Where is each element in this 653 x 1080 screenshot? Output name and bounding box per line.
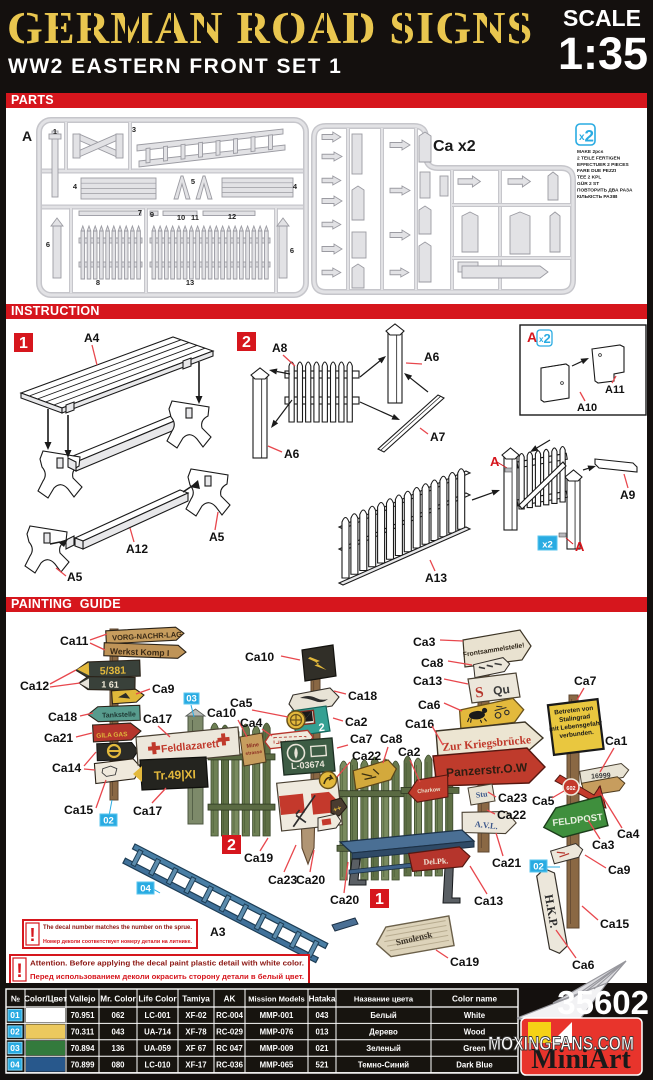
svg-text:Ca10: Ca10 [207,706,236,720]
svg-text:12: 12 [228,212,236,221]
svg-text:FARE DUE PEZZI: FARE DUE PEZZI [577,168,617,174]
svg-text:A3: A3 [210,925,226,939]
svg-text:GÜR 2 ST: GÜR 2 ST [577,180,599,187]
svg-text:3: 3 [132,125,136,134]
svg-text:Ca4: Ca4 [617,827,640,841]
svg-text:4: 4 [293,182,298,191]
svg-text:02: 02 [103,816,114,827]
svg-text:1 61: 1 61 [101,679,119,689]
svg-text:Ca7: Ca7 [350,732,373,746]
svg-text:A6: A6 [284,447,300,461]
svg-text:Ca16: Ca16 [405,717,434,731]
svg-text:Ca7: Ca7 [574,674,597,688]
svg-text:1: 1 [53,127,57,136]
svg-text:Qu: Qu [492,682,510,698]
svg-text:Ca8: Ca8 [380,732,403,746]
svg-text:A13: A13 [425,571,447,585]
svg-text:Tankstelle: Tankstelle [102,711,136,719]
svg-text:Ca18: Ca18 [348,689,377,703]
svg-text:Ca20: Ca20 [296,873,325,887]
svg-text:Ca x2: Ca x2 [433,138,476,155]
svg-text:Tr.49|XI: Tr.49|XI [154,767,197,782]
svg-text:MOXINGFANS.COM: MOXINGFANS.COM [488,1034,634,1055]
svg-text:2: 2 [585,127,594,146]
svg-text:A7: A7 [430,430,446,444]
svg-text:Ca2: Ca2 [398,745,421,759]
svg-text:4: 4 [73,182,78,191]
svg-text:A8: A8 [272,341,288,355]
svg-text:6: 6 [46,240,50,249]
svg-text:Ca12: Ca12 [20,679,49,693]
svg-text:Ca13: Ca13 [474,894,503,908]
svg-text:EFFECTUER 2 PIECES: EFFECTUER 2 PIECES [577,162,630,168]
svg-text:x2: x2 [542,540,553,551]
svg-text:Ca3: Ca3 [413,635,436,649]
svg-text:КІЛЬКІСТЬ РАЗІВ: КІЛЬКІСТЬ РАЗІВ [577,194,618,200]
svg-text:TEE 2 KPL: TEE 2 KPL [577,175,601,181]
svg-text:Ca18: Ca18 [48,710,77,724]
svg-text:A12: A12 [126,542,148,556]
svg-text:Ca10: Ca10 [245,650,274,664]
svg-text:Ca19: Ca19 [244,851,273,865]
svg-text:Ca8: Ca8 [421,656,444,670]
svg-text:Ca14: Ca14 [52,761,81,775]
svg-text:5/381: 5/381 [100,665,127,678]
svg-text:Ca15: Ca15 [600,917,629,931]
svg-text:Ca17: Ca17 [133,804,162,818]
svg-text:A: A [22,128,32,144]
svg-text:Ca4: Ca4 [240,716,263,730]
svg-text:Ca5: Ca5 [532,794,555,808]
svg-text:7: 7 [138,208,142,217]
svg-text:Ca9: Ca9 [152,682,175,696]
svg-text:2: 2 [318,722,325,735]
svg-text:8: 8 [96,278,100,287]
svg-text:02: 02 [533,862,544,873]
svg-text:Ca3: Ca3 [592,838,615,852]
svg-text:11: 11 [191,213,199,222]
svg-text:Stu: Stu [475,789,488,800]
svg-text:The decal number matches the: The decal number matches the number on t… [43,924,192,931]
svg-text:Ca22: Ca22 [352,749,381,763]
svg-text:A10: A10 [577,402,597,414]
svg-text:A11: A11 [605,384,625,396]
svg-text:5: 5 [191,177,195,186]
svg-text:04: 04 [140,884,151,895]
svg-text:2: 2 [227,837,236,854]
svg-text:A9: A9 [620,488,636,502]
svg-text:Ca1: Ca1 [605,734,628,748]
svg-text:ПОВТОРИТЬ ДВА РАЗА: ПОВТОРИТЬ ДВА РАЗА [577,187,633,193]
svg-text:Ca23: Ca23 [268,873,297,887]
svg-text:03: 03 [186,694,197,705]
svg-text:35602: 35602 [557,984,649,1021]
svg-text:1: 1 [375,891,384,908]
svg-text:2 TEILE FERTIGEN: 2 TEILE FERTIGEN [577,155,621,161]
svg-text:A: A [575,539,585,554]
svg-text:10: 10 [177,213,185,222]
svg-text:A: A [527,329,537,345]
svg-text:Werkst Komp I: Werkst Komp I [110,646,170,658]
svg-text:Ca23: Ca23 [498,791,527,805]
svg-text:2: 2 [242,334,251,351]
svg-text:2: 2 [544,331,551,346]
svg-text:Del.Pk.: Del.Pk. [423,856,448,866]
svg-text:Ca15: Ca15 [64,803,93,817]
svg-text:Ca9: Ca9 [608,863,631,877]
svg-text:MAKE 2pcs: MAKE 2pcs [577,149,604,155]
svg-text:Ca21: Ca21 [44,731,73,745]
svg-text:Ca17: Ca17 [143,712,172,726]
svg-text:A5: A5 [209,530,225,544]
svg-text:A4: A4 [84,331,100,345]
svg-text:6: 6 [290,246,294,255]
svg-text:Ca20: Ca20 [330,893,359,907]
svg-text:Ca11: Ca11 [60,634,89,648]
svg-text:1: 1 [19,335,28,352]
svg-text:Ca6: Ca6 [418,698,441,712]
svg-text:13: 13 [186,278,194,287]
svg-text:Ca2: Ca2 [345,715,368,729]
svg-text:A5: A5 [67,570,83,584]
svg-text:602: 602 [566,786,575,792]
svg-text:Ca21: Ca21 [492,856,521,870]
svg-text:A: A [490,454,500,469]
svg-text:A6: A6 [424,350,440,364]
svg-text:9: 9 [150,210,154,219]
svg-text:Ca22: Ca22 [497,808,526,822]
svg-text:Ca13: Ca13 [413,674,442,688]
